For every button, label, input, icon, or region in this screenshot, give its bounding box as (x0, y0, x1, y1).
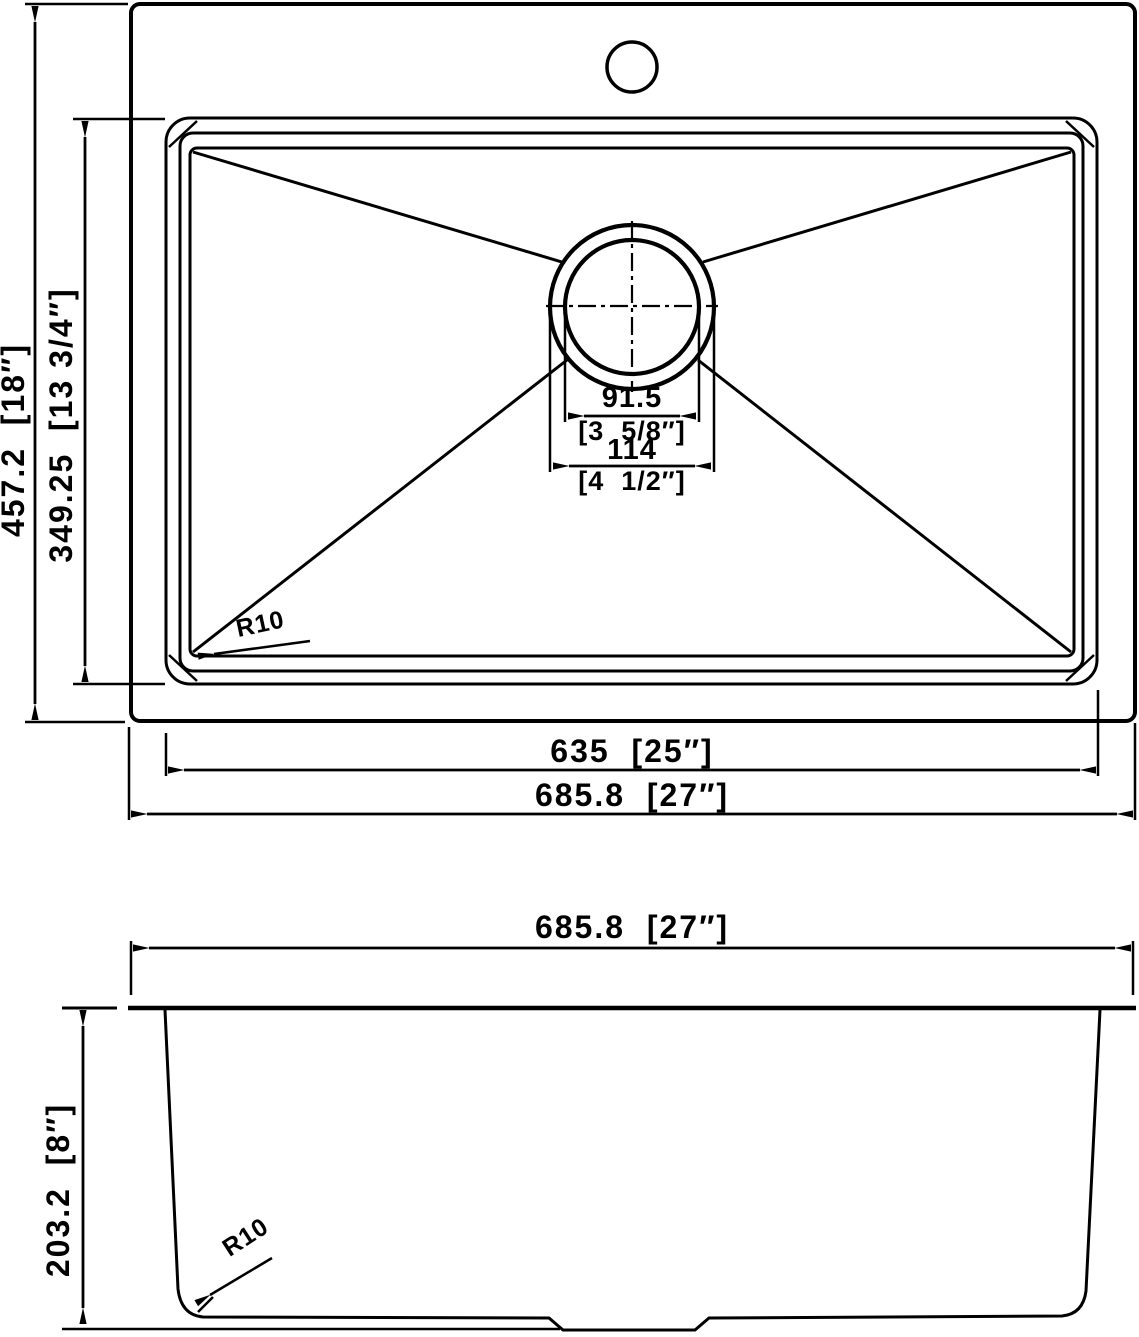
dim-depth: 203.2 [8″] (40, 1026, 560, 1329)
dim-bowl-height: 349.25 [13 3/4″] (43, 119, 165, 684)
sink-dimension-drawing: 91.5 [3 5/8″] 114 [4 1/2″] 457.2 [18″] 3… (0, 0, 1139, 1337)
faucet-hole (607, 42, 657, 92)
corner-radius-callout-plan: R10 (214, 605, 310, 654)
corner-radius-text-plan: R10 (234, 605, 288, 643)
bowl-section-profile (165, 1010, 1100, 1330)
dim-text-bowl-width: 635 [25″] (550, 733, 713, 769)
dim-overall-width-side: 685.8 [27″] (131, 909, 1133, 995)
dim-text-drain-strainer-mm: 91.5 (602, 382, 662, 414)
dim-text-overall-height: 457.2 [18″] (0, 343, 31, 537)
top-view: 91.5 [3 5/8″] 114 [4 1/2″] 457.2 [18″] 3… (0, 4, 1135, 820)
dim-text-bowl-height: 349.25 [13 3/4″] (43, 287, 79, 562)
dim-text-overall-width-plan: 685.8 [27″] (535, 777, 729, 813)
dim-bowl-width: 635 [25″] (166, 690, 1098, 776)
corner-radius-text-side: R10 (218, 1212, 274, 1262)
dim-text-drain-opening-mm: 114 (607, 434, 657, 466)
dim-text-overall-width-side: 685.8 [27″] (535, 909, 729, 945)
dim-text-depth: 203.2 [8″] (40, 1103, 76, 1277)
corner-radius-callout-side: R10 (198, 1212, 274, 1312)
drawing-sheet: 91.5 [3 5/8″] 114 [4 1/2″] 457.2 [18″] 3… (0, 0, 1139, 1337)
side-view: 685.8 [27″] 203.2 [8″] R10 (40, 909, 1136, 1330)
dim-text-drain-opening-in: [4 1/2″] (578, 466, 685, 496)
